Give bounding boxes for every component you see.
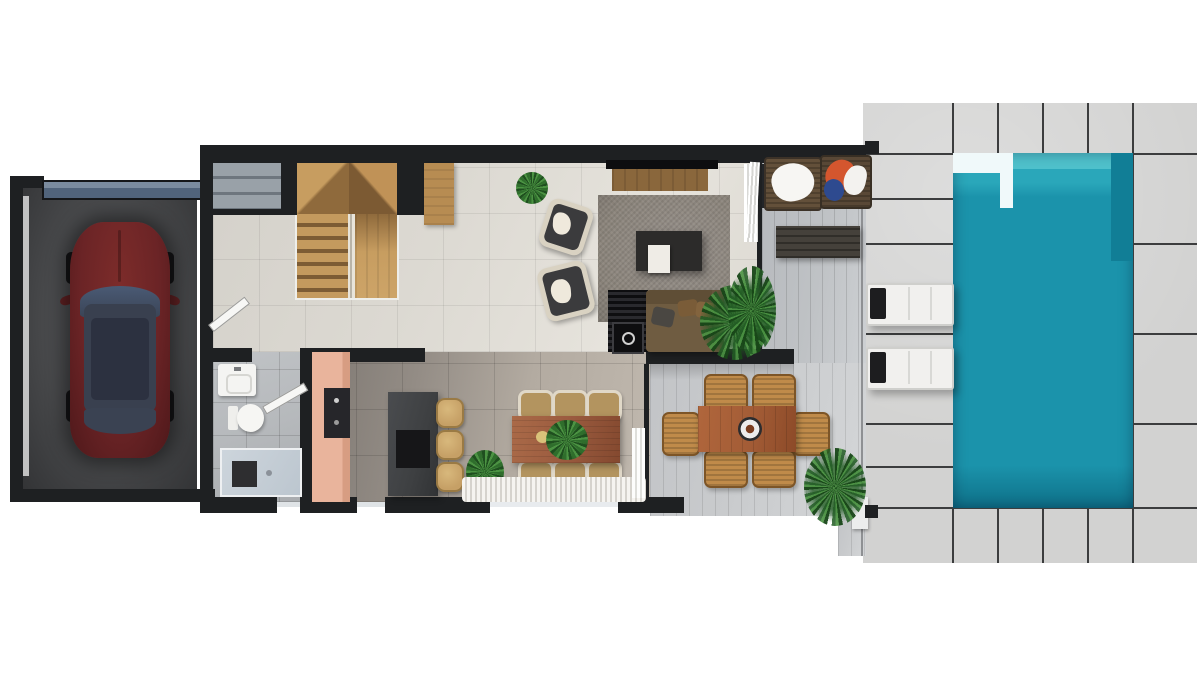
paver-gap — [997, 508, 999, 563]
terrace-lounger — [820, 155, 872, 209]
stair-glass-railing — [348, 214, 355, 298]
shower-mat — [232, 461, 257, 487]
deck-palm-plant — [804, 448, 866, 526]
stair-landing-left — [297, 160, 349, 214]
paver-gap — [863, 423, 953, 425]
garage-wall-corner — [10, 176, 44, 188]
sofa-pillow-gray — [650, 306, 675, 328]
paver-gap — [997, 103, 999, 155]
paver-gap — [1042, 508, 1044, 563]
terrace-lounger — [764, 157, 822, 211]
kitchen-range — [324, 388, 350, 438]
paver-gap — [1132, 243, 1197, 245]
range-knob — [334, 420, 339, 425]
stair-wall-stub-right — [397, 157, 424, 215]
pool-ledge-bar — [1000, 153, 1013, 208]
speaker-cone — [622, 332, 635, 345]
lounger-seam — [930, 287, 932, 320]
outdoor-wicker-chair — [704, 450, 748, 488]
living-plant — [516, 172, 548, 204]
stair-flight-up — [355, 214, 397, 298]
fire-bowl — [738, 417, 762, 441]
car — [68, 222, 172, 458]
toilet-bowl — [237, 404, 264, 432]
bar-stool — [436, 398, 464, 428]
dining-table-plant — [546, 420, 588, 460]
pool-sun-lounger — [866, 347, 954, 390]
window-glass — [357, 502, 385, 507]
shower — [220, 448, 302, 497]
tv-console — [612, 169, 708, 191]
paver-gap — [863, 466, 953, 468]
speaker — [612, 322, 644, 354]
garage-wall-bottom — [10, 489, 215, 502]
sink-faucet — [234, 367, 241, 371]
bar-stool — [436, 462, 464, 492]
stair-wall-stub-left — [281, 157, 297, 215]
paver-gap — [952, 103, 954, 155]
garage-wall-left — [10, 176, 23, 502]
wall-bottom-1 — [205, 497, 277, 513]
sink-bowl — [226, 374, 252, 394]
bar-stool — [436, 430, 464, 460]
entry-threshold — [213, 209, 283, 215]
lounger-seam — [908, 287, 910, 320]
stair-landing-right — [349, 160, 397, 214]
terrace-palm-plant — [728, 266, 776, 354]
outdoor-wicker-chair — [752, 450, 796, 488]
bathroom-sink — [218, 364, 256, 396]
dining-curtain — [632, 428, 645, 498]
swimming-pool — [953, 153, 1133, 508]
lounger-headrest — [870, 288, 886, 319]
pool-sun-lounger — [866, 283, 954, 326]
paver-gap — [952, 508, 954, 563]
shower-drain — [266, 470, 272, 476]
tv — [606, 160, 718, 169]
white-towel — [767, 157, 819, 206]
toilet — [228, 404, 264, 432]
coffee-table-tray — [648, 245, 670, 273]
paver-gap — [863, 198, 953, 200]
paver-gap — [1132, 423, 1197, 425]
car-sunroof — [91, 318, 149, 400]
wall-interior-hall — [205, 348, 252, 362]
island-cooktop — [396, 430, 430, 468]
corner-pillar-top — [865, 141, 879, 154]
car-rear-window — [84, 408, 156, 434]
paver-gap — [1042, 103, 1044, 155]
car-hood-line — [118, 230, 121, 282]
outdoor-wicker-chair — [662, 412, 700, 456]
sideboard — [424, 163, 454, 225]
paver-gap — [1087, 103, 1089, 155]
range-knob — [334, 398, 339, 403]
corner-pillar-bottom — [865, 505, 878, 518]
sliding-glass-door — [490, 502, 618, 507]
fringe-rug — [462, 477, 646, 502]
paver-gap — [863, 333, 953, 335]
floor-plan — [0, 0, 1200, 675]
garage-floor-edge — [23, 196, 29, 476]
lounger-seam — [930, 351, 932, 384]
pool-shadow-right — [1111, 153, 1133, 261]
terrace-bench — [776, 226, 860, 258]
stair-flight-down — [297, 214, 348, 298]
paver-gap — [1132, 333, 1197, 335]
garage-door — [42, 180, 202, 200]
paver-gap — [1087, 508, 1089, 563]
paver-gap — [863, 243, 953, 245]
staircase — [295, 158, 399, 300]
lounger-seam — [908, 351, 910, 384]
lounger-headrest — [870, 352, 886, 383]
kitchen-island — [388, 392, 438, 496]
